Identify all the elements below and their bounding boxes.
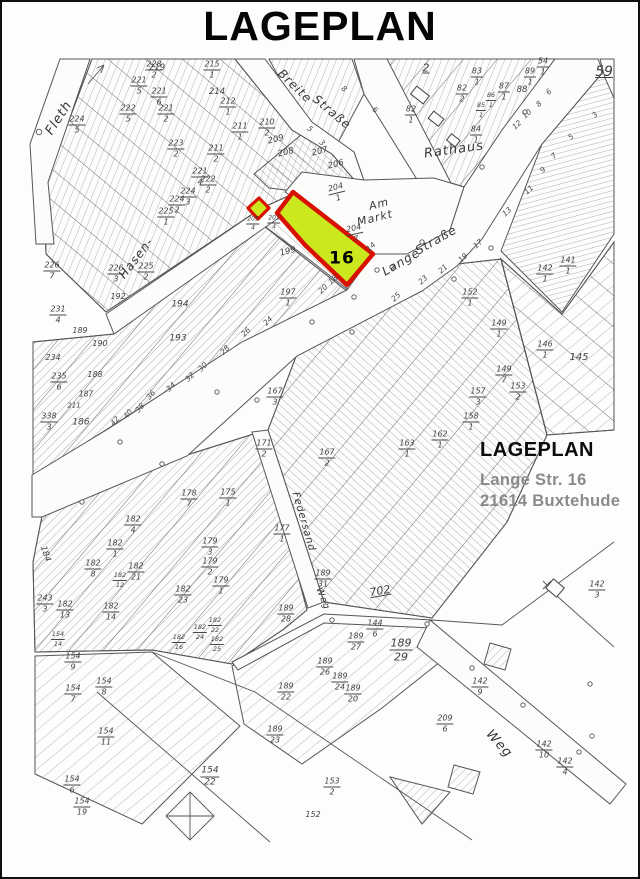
building-hatched-3 [390, 777, 450, 824]
annotation-address-line2: 21614 Buxtehude [480, 491, 620, 512]
building-hatched-1 [484, 643, 511, 670]
street-weg [417, 620, 626, 804]
site-plan-page: LAGEPLAN [0, 0, 640, 879]
annotation-address-line1: Lange Str. 16 [480, 470, 620, 491]
building-hatched-2 [448, 765, 480, 794]
block-154 [35, 652, 240, 824]
annotation-heading: LAGEPLAN [480, 439, 620, 462]
annotation-block: LAGEPLAN Lange Str. 16 21614 Buxtehude [480, 439, 620, 512]
crossed-parcel [166, 792, 214, 840]
